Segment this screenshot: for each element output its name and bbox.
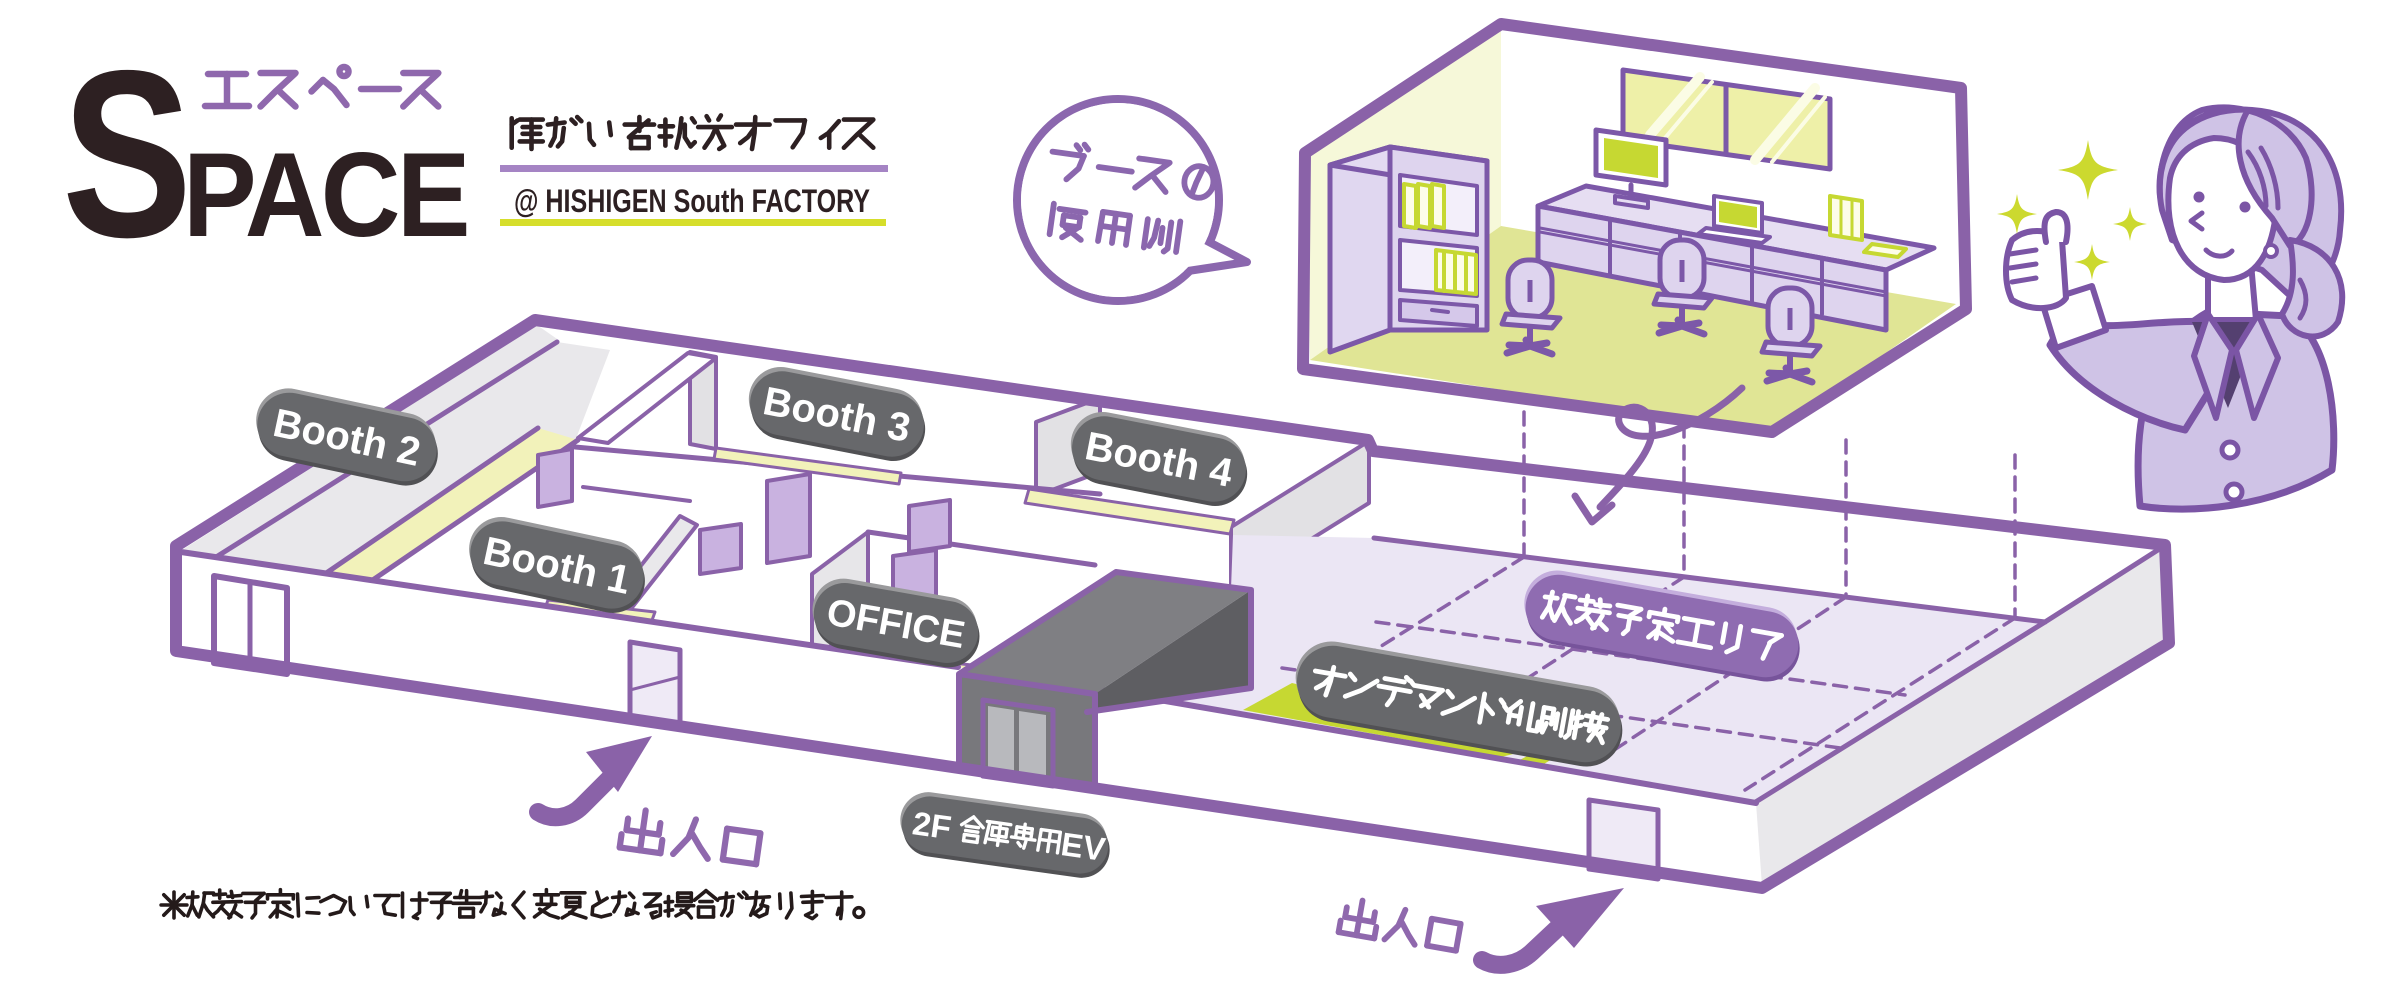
svg-text:@ HISHIGEN South FACTORY: @ HISHIGEN South FACTORY — [514, 183, 870, 219]
svg-text:2F: 2F — [910, 804, 953, 846]
svg-text:PACE: PACE — [183, 129, 467, 262]
svg-text:S: S — [62, 22, 192, 288]
svg-text:EV: EV — [1059, 825, 1108, 868]
